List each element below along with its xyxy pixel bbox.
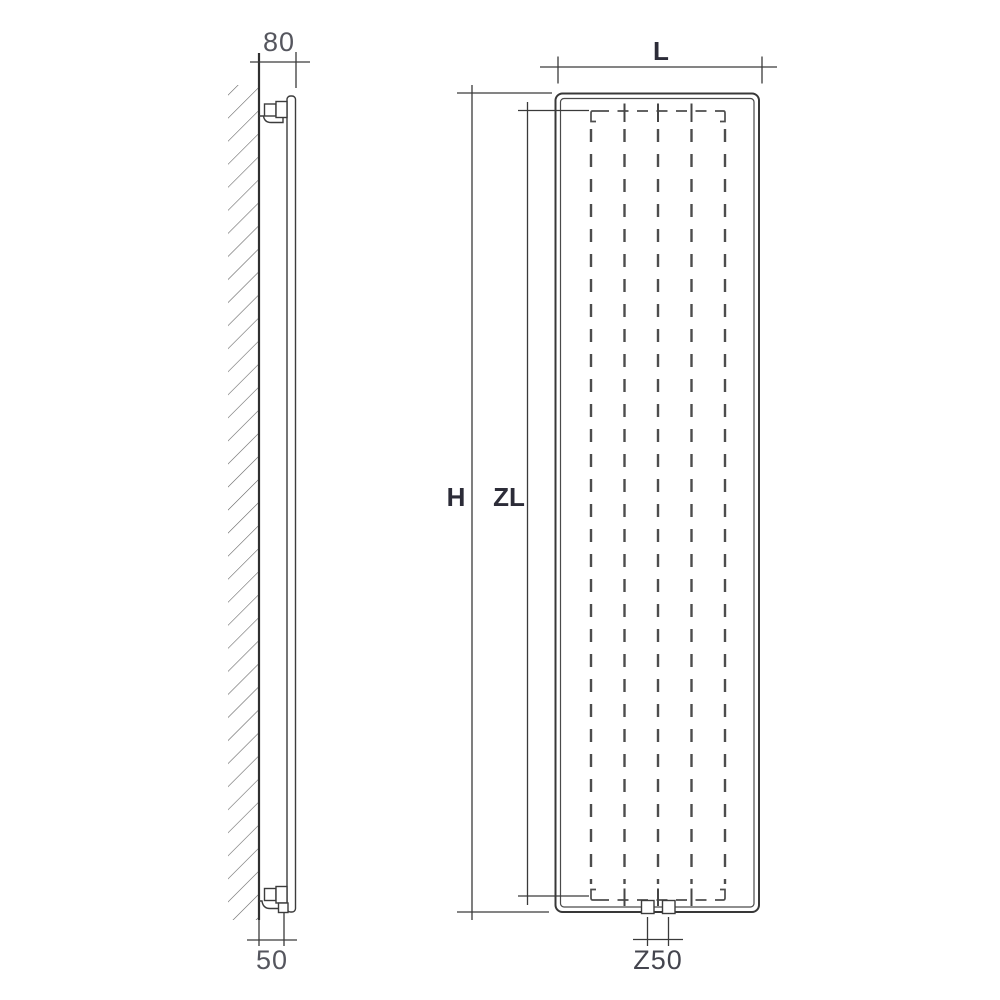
dim-50-label: 50 — [256, 945, 288, 975]
dim-Z50-label: Z50 — [633, 945, 683, 975]
radiator-side-panel — [287, 96, 296, 912]
bracket-top-block-inner — [265, 104, 277, 116]
front-view: L H ZL Z50 — [447, 36, 777, 975]
bottom-connection-stub — [279, 903, 289, 913]
dimension-connection-spacing-Z50: Z50 — [633, 917, 683, 975]
bracket-bottom-hook — [259, 901, 278, 909]
dim-H-label: H — [447, 482, 466, 512]
side-view: 80 50 — [228, 27, 310, 975]
wall-hatch — [228, 85, 259, 920]
radiator-technical-drawing: 80 50 — [0, 0, 1000, 1000]
dimension-width-L: L — [540, 36, 777, 84]
bracket-bottom-block-inner — [265, 889, 277, 901]
dim-L-label: L — [653, 36, 669, 66]
dim-80-label: 80 — [263, 27, 295, 57]
bracket-top-block-outer — [276, 102, 287, 118]
bracket-bottom-block-outer — [276, 887, 287, 904]
mounting-bracket-top — [259, 102, 287, 123]
dimension-connection-depth-50: 50 — [247, 913, 297, 975]
dim-ZL-label: ZL — [493, 482, 525, 512]
mounting-bracket-bottom — [259, 887, 288, 913]
drawing-svg: 80 50 — [0, 0, 1000, 1000]
connection-valve-left — [642, 901, 655, 914]
connection-valve-right — [663, 901, 676, 914]
